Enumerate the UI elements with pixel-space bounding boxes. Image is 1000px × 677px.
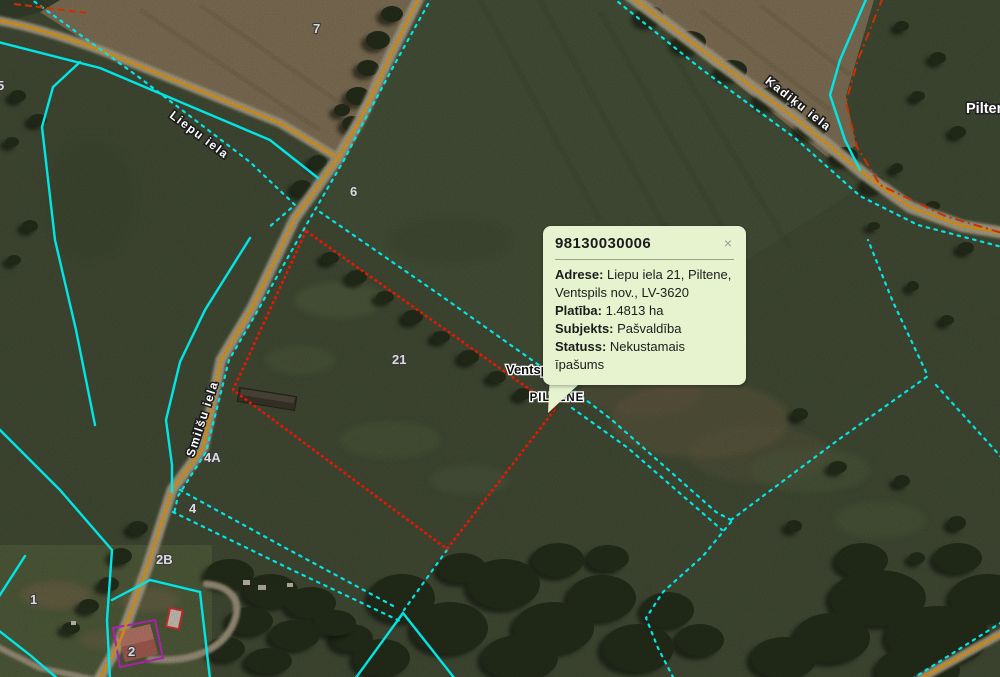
parcel-number-7: 7 (313, 21, 320, 36)
parcel-number-6: 6 (350, 184, 357, 199)
map-viewport: 7 6 21 5 4A 4 2B 2 1 Liepu iela Smilšu i… (0, 0, 1000, 677)
popup-header: 98130030006 × (555, 235, 734, 260)
parcel-number-4: 4 (189, 501, 197, 516)
parcel-number-2: 2 (128, 644, 135, 659)
parcel-info-popup: 98130030006 × Adrese: Liepu iela 21, Pil… (543, 226, 746, 385)
popup-row-statuss: Statuss: Nekustamais īpašums (555, 338, 734, 374)
map-canvas[interactable]: 7 6 21 5 4A 4 2B 2 1 Liepu iela Smilšu i… (0, 0, 1000, 677)
parcel-number-1: 1 (30, 592, 37, 607)
popup-field-value: 1.4813 ha (606, 303, 664, 318)
popup-title: 98130030006 (555, 235, 651, 252)
parcel-number-21: 21 (392, 352, 406, 367)
popup-body: Adrese: Liepu iela 21, Piltene, Ventspil… (555, 266, 734, 374)
town-label-piltene: Piltene (966, 101, 1000, 117)
parcel-number-5: 5 (0, 78, 4, 93)
popup-row-subjekts: Subjekts: Pašvaldība (555, 320, 734, 338)
popup-field-value: Pašvaldība (617, 321, 681, 336)
popup-field-label: Statuss: (555, 339, 606, 354)
popup-row-platiba: Platība: 1.4813 ha (555, 302, 734, 320)
popup-row-adrese: Adrese: Liepu iela 21, Piltene, Ventspil… (555, 266, 734, 302)
image-grain (0, 0, 1000, 677)
parcel-number-4a: 4A (204, 450, 221, 465)
popup-field-label: Adrese: (555, 267, 603, 282)
popup-close-button[interactable]: × (722, 235, 734, 251)
popup-field-label: Subjekts: (555, 321, 614, 336)
popup-field-label: Platība: (555, 303, 602, 318)
parcel-number-2b: 2B (156, 552, 173, 567)
